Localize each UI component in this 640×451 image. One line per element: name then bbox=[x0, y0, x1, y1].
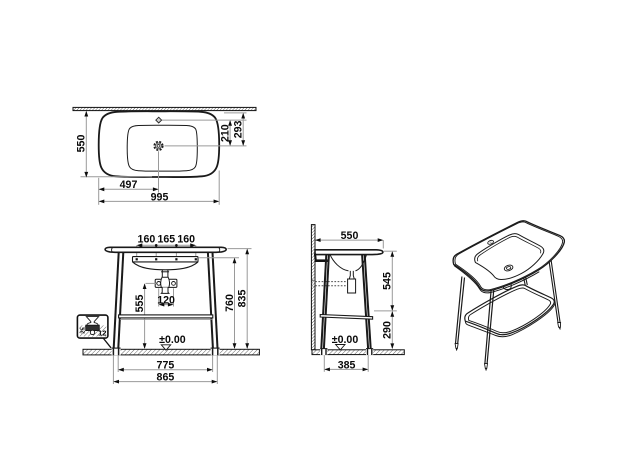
svg-text:760: 760 bbox=[224, 294, 236, 312]
svg-text:290: 290 bbox=[382, 321, 394, 339]
svg-text:210: 210 bbox=[219, 124, 231, 142]
svg-text:165: 165 bbox=[157, 233, 175, 245]
svg-text:865: 865 bbox=[157, 372, 175, 384]
svg-text:25: 25 bbox=[80, 327, 86, 334]
svg-text:550: 550 bbox=[341, 230, 359, 242]
svg-text:545: 545 bbox=[382, 272, 394, 290]
svg-text:995: 995 bbox=[151, 191, 169, 203]
svg-text:775: 775 bbox=[157, 360, 175, 372]
svg-text:160: 160 bbox=[177, 233, 195, 245]
svg-text:385: 385 bbox=[338, 359, 356, 371]
svg-text:120: 120 bbox=[157, 295, 175, 307]
svg-text:12: 12 bbox=[98, 329, 106, 338]
svg-text:835: 835 bbox=[237, 290, 249, 308]
svg-text:550: 550 bbox=[76, 135, 88, 153]
svg-text:497: 497 bbox=[120, 179, 138, 191]
svg-text:293: 293 bbox=[232, 120, 244, 138]
svg-text:160: 160 bbox=[138, 233, 156, 245]
svg-text:555: 555 bbox=[134, 295, 146, 313]
